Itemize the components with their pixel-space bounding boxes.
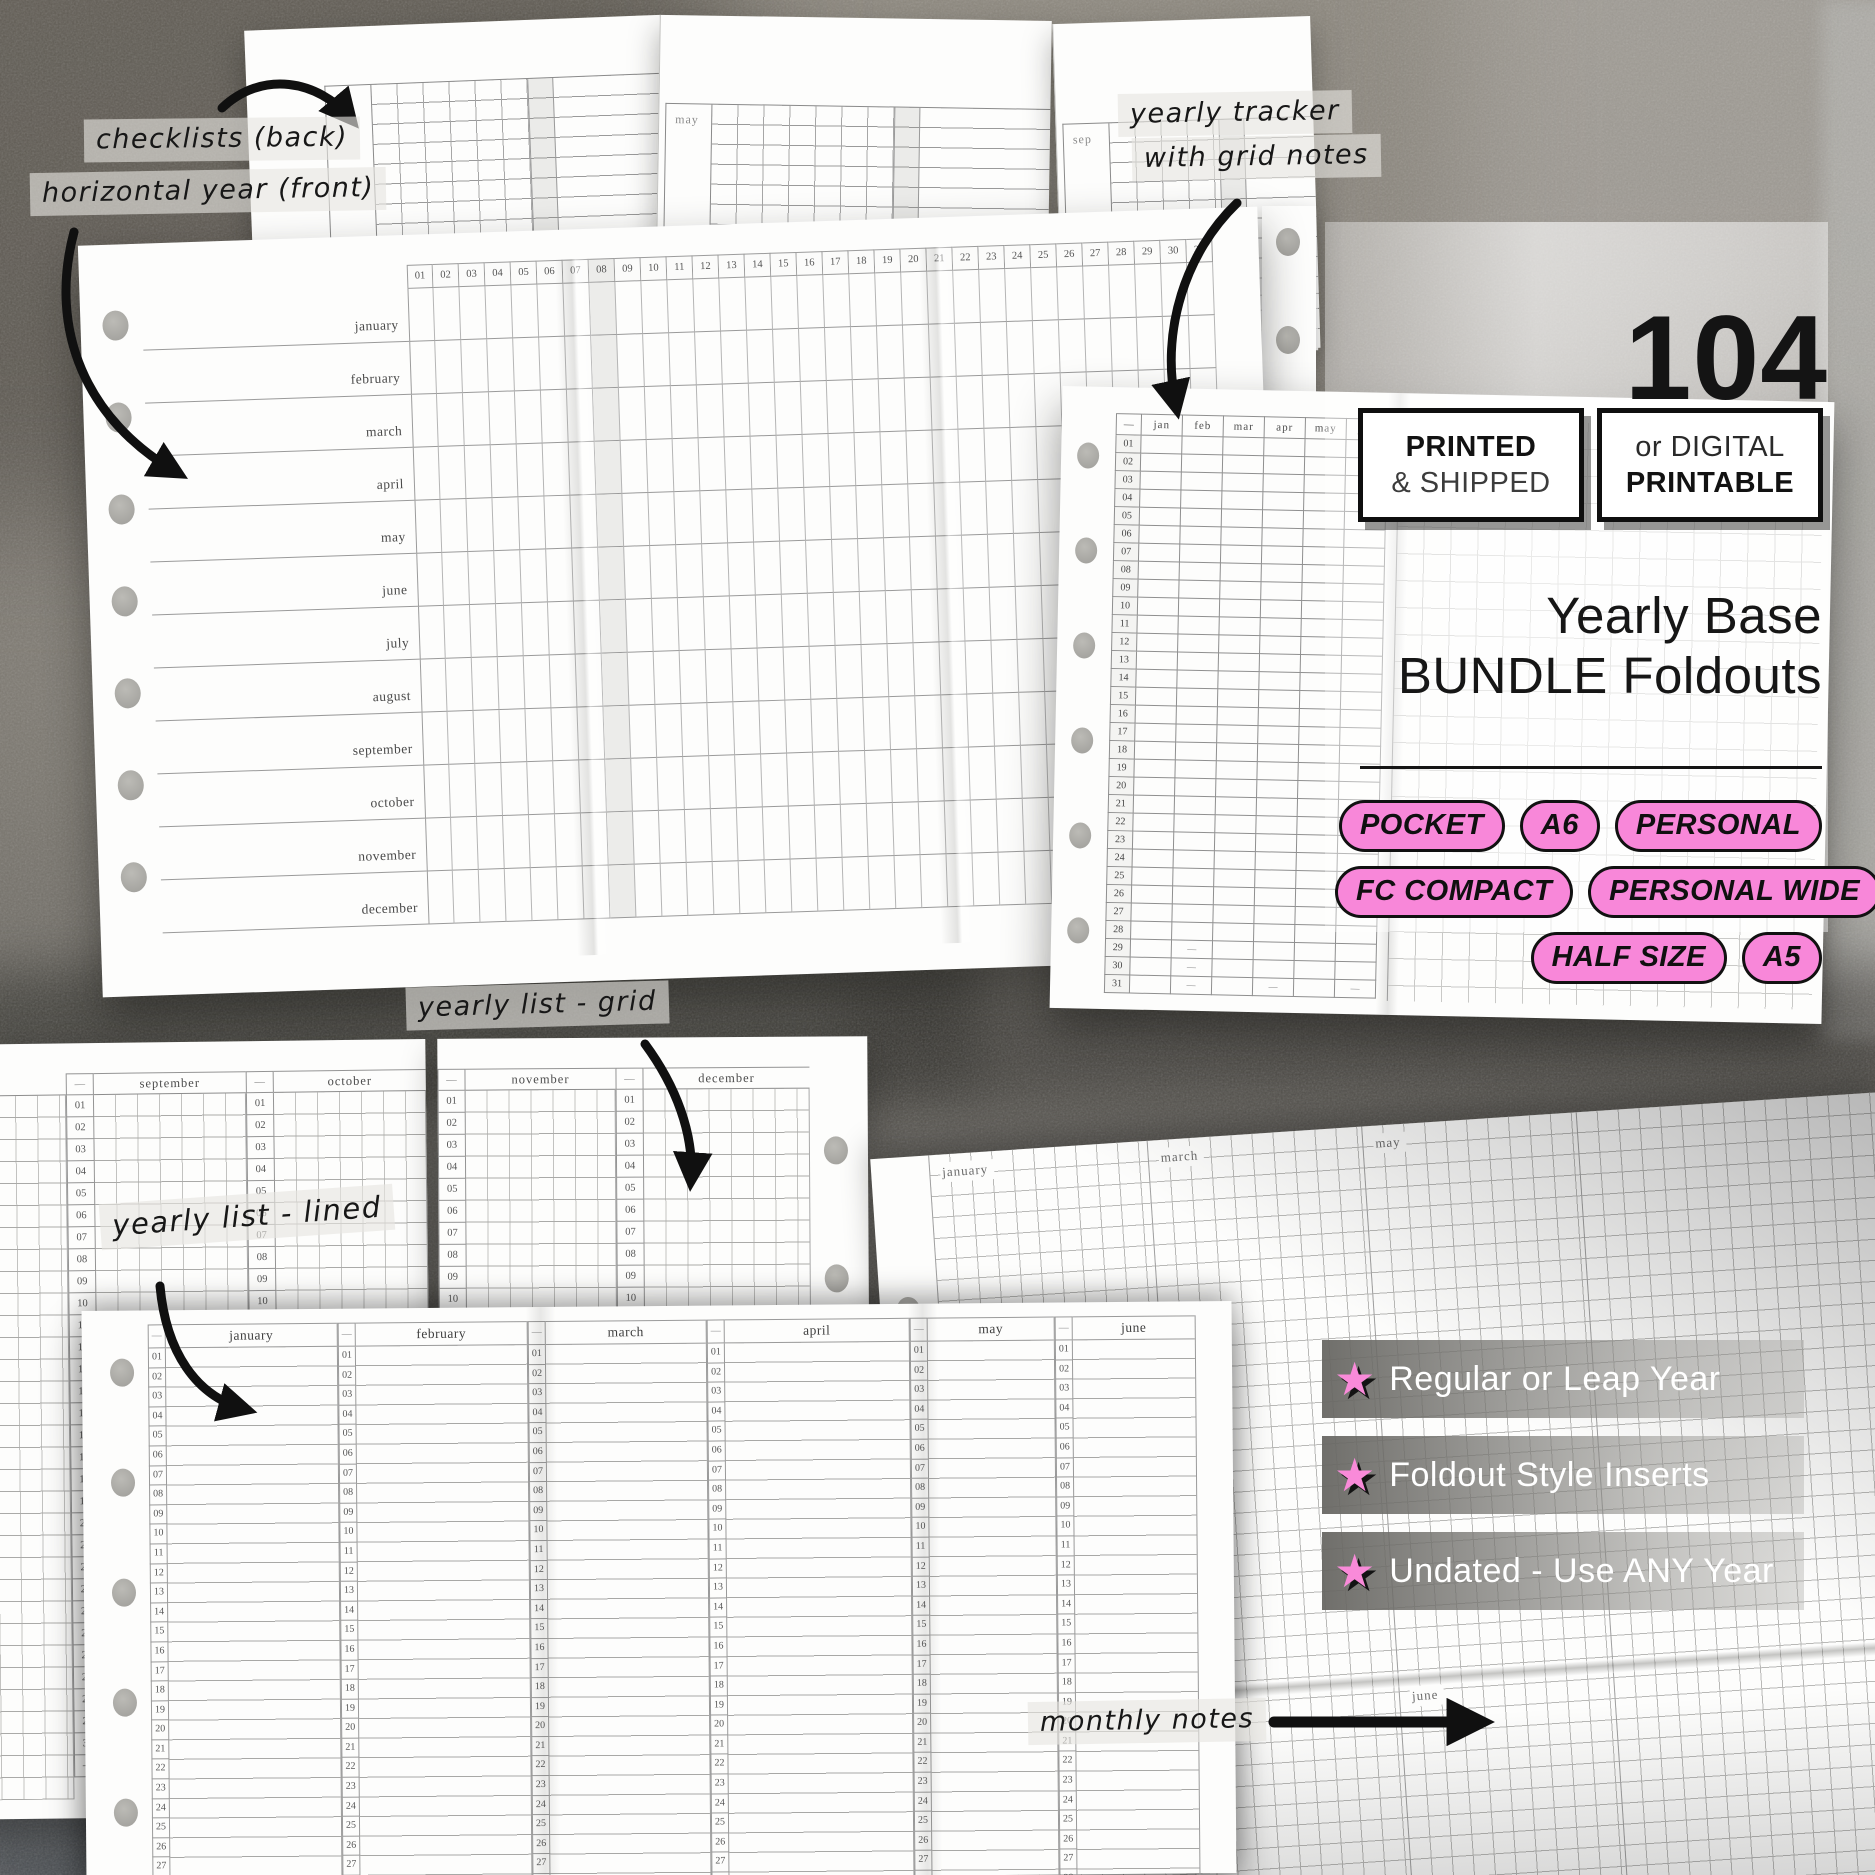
binder-hole bbox=[1067, 917, 1090, 943]
binder-hole bbox=[108, 494, 135, 525]
size-badge: HALF SIZE bbox=[1531, 932, 1727, 984]
product-image: janfebmayjunsepoct 010203040506070809101… bbox=[0, 0, 1875, 1875]
binder-hole bbox=[120, 862, 147, 893]
binder-hole bbox=[1075, 537, 1098, 563]
binder-hole bbox=[114, 678, 141, 709]
binder-hole bbox=[1276, 228, 1300, 256]
annotation-monthly-notes: monthly notes bbox=[1028, 1698, 1267, 1745]
size-badge: PERSONAL WIDE bbox=[1588, 866, 1875, 918]
binder-hole bbox=[1069, 822, 1092, 848]
binder-hole bbox=[102, 310, 129, 341]
annotation-tracker-line2: with grid notes bbox=[1132, 134, 1381, 181]
binder-hole bbox=[112, 1579, 136, 1607]
feature-text: Foldout Style Inserts bbox=[1389, 1456, 1709, 1495]
size-badge: A5 bbox=[1742, 932, 1822, 984]
size-badge: A6 bbox=[1520, 800, 1600, 852]
feature-list: ★Regular or Leap Year★Foldout Style Inse… bbox=[1322, 1340, 1804, 1628]
badge-digital-printable: or DIGITAL PRINTABLE bbox=[1597, 408, 1823, 522]
lined-list-columns: —010203040506070809101112131415161718192… bbox=[148, 1315, 1201, 1875]
insert-count: 104 bbox=[1470, 298, 1828, 418]
size-badges: POCKETA6PERSONALFC COMPACTPERSONAL WIDEH… bbox=[1320, 800, 1822, 998]
annotation-checklists: checklists (back) bbox=[84, 117, 361, 163]
size-badge: FC COMPACT bbox=[1335, 866, 1573, 918]
binder-hole bbox=[111, 586, 138, 617]
binder-hole bbox=[110, 1359, 134, 1387]
feature-row: ★Foldout Style Inserts bbox=[1322, 1436, 1804, 1514]
binder-hole bbox=[1276, 326, 1300, 354]
binder-hole bbox=[117, 770, 144, 801]
star-icon: ★ bbox=[1334, 1452, 1375, 1498]
binder-hole bbox=[113, 1689, 137, 1717]
divider-line bbox=[1360, 766, 1822, 769]
binder-hole bbox=[111, 1469, 135, 1497]
month-label: march bbox=[1158, 1145, 1205, 1168]
badge-line: & SHIPPED bbox=[1363, 465, 1579, 501]
badge-printed-shipped: PRINTED & SHIPPED bbox=[1358, 408, 1584, 522]
binder-hole bbox=[825, 1264, 849, 1292]
badge-line: or DIGITAL bbox=[1602, 429, 1818, 465]
binder-hole bbox=[1071, 727, 1094, 753]
month-label: june bbox=[1409, 1684, 1445, 1706]
binder-hole bbox=[1073, 632, 1096, 658]
product-title: Yearly Base BUNDLE Foldouts bbox=[1340, 586, 1822, 706]
star-icon: ★ bbox=[1334, 1548, 1375, 1594]
title-line1: Yearly Base bbox=[1340, 586, 1822, 646]
binder-hole bbox=[824, 1136, 848, 1164]
month-label: january bbox=[940, 1159, 995, 1183]
annotation-horizontal-year: horizontal year (front) bbox=[30, 167, 387, 216]
grid-list-panel bbox=[0, 1073, 75, 1821]
size-badge: PERSONAL bbox=[1615, 800, 1822, 852]
binder-hole bbox=[114, 1799, 138, 1827]
month-label: may bbox=[1373, 1132, 1408, 1154]
feature-row: ★Undated - Use ANY Year bbox=[1322, 1532, 1804, 1610]
feature-text: Regular or Leap Year bbox=[1389, 1360, 1720, 1399]
fold-crease bbox=[907, 1304, 942, 1875]
annotation-tracker-line1: yearly tracker bbox=[1118, 90, 1352, 137]
title-line2: BUNDLE Foldouts bbox=[1340, 646, 1822, 706]
annotation-grid-list: yearly list - grid bbox=[405, 980, 669, 1030]
binder-hole bbox=[105, 402, 132, 433]
feature-row: ★Regular or Leap Year bbox=[1322, 1340, 1804, 1418]
star-icon: ★ bbox=[1334, 1356, 1375, 1402]
size-badge: POCKET bbox=[1339, 800, 1505, 852]
fold-crease bbox=[526, 1307, 561, 1875]
feature-text: Undated - Use ANY Year bbox=[1389, 1552, 1774, 1591]
badge-line: PRINTED bbox=[1363, 429, 1579, 465]
mockup-yearly-list-lined-foldout: —010203040506070809101112131415161718192… bbox=[82, 1301, 1237, 1875]
badge-line: PRINTABLE bbox=[1602, 465, 1818, 501]
binder-hole bbox=[1077, 442, 1100, 468]
